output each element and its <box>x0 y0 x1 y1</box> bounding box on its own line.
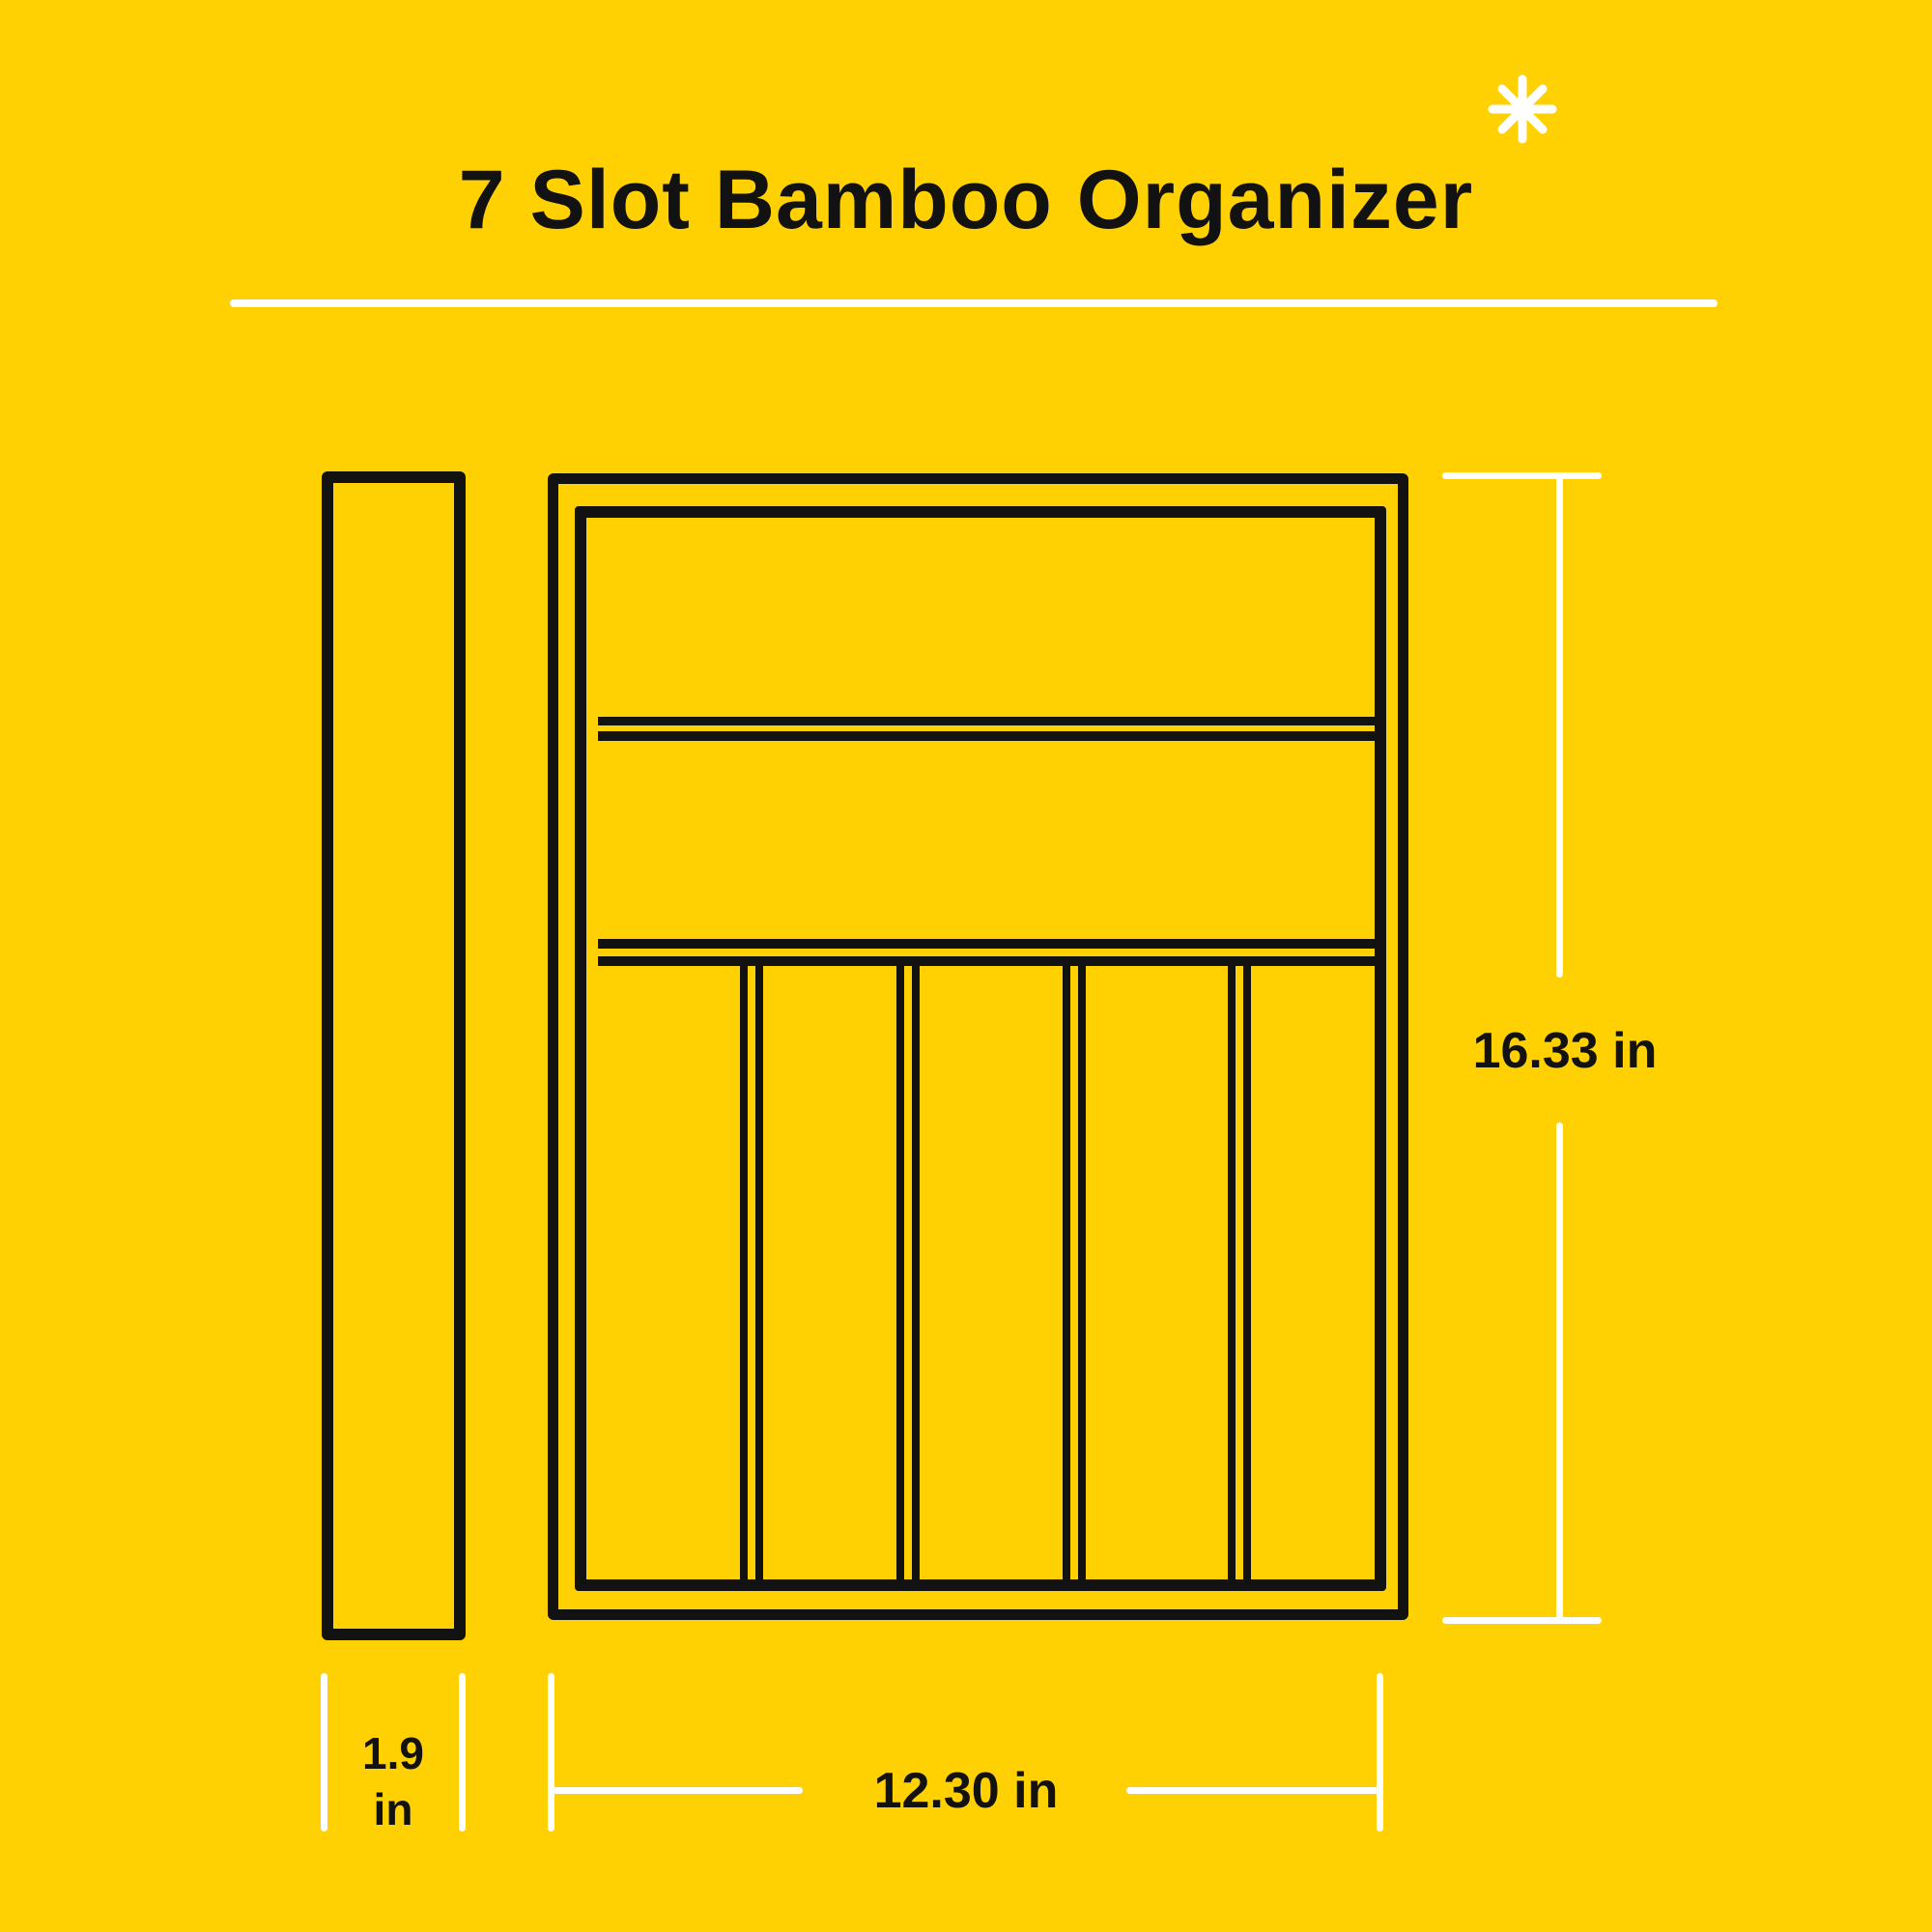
slot-divider-line <box>740 966 748 1591</box>
compartment-divider-line <box>598 717 1386 725</box>
slot-divider-line <box>1078 966 1086 1591</box>
compartment-divider-line <box>598 939 1386 949</box>
title-underline <box>230 299 1718 307</box>
slot-divider-line <box>912 966 920 1591</box>
height-dim-line-lower <box>1556 1122 1563 1623</box>
slot-divider-line <box>755 966 763 1591</box>
depth-dim-unit: in <box>321 1781 466 1837</box>
asterisk-icon <box>1488 74 1557 144</box>
width-dim-right-tick <box>1377 1673 1383 1832</box>
height-dim-line-upper <box>1556 477 1563 978</box>
width-dim-line-right <box>1126 1787 1379 1794</box>
slot-divider-line <box>1243 966 1251 1591</box>
compartment-divider-line <box>598 731 1386 741</box>
page-title: 7 Slot Bamboo Organizer <box>0 147 1932 253</box>
depth-dim-value: 1.9 <box>321 1725 466 1781</box>
slot-divider-line <box>896 966 904 1591</box>
slot-divider-line <box>1228 966 1236 1591</box>
width-dim-label: 12.30 in <box>807 1762 1125 1820</box>
compartment-divider-line <box>598 956 1386 966</box>
infographic-canvas: 7 Slot Bamboo Organizer 16.33 in 12.30 i… <box>0 0 1932 1932</box>
depth-dim-label: 1.9 in <box>321 1725 466 1837</box>
slot-divider-line <box>1063 966 1070 1591</box>
height-dim-top-tick <box>1442 472 1602 479</box>
side-view-outline <box>322 471 466 1640</box>
height-dim-bottom-tick <box>1442 1617 1602 1624</box>
inner-tray-outline <box>575 506 1386 1591</box>
width-dim-left-tick <box>548 1673 554 1832</box>
width-dim-line-left <box>552 1787 803 1794</box>
height-dim-label: 16.33 in <box>1410 1022 1719 1080</box>
